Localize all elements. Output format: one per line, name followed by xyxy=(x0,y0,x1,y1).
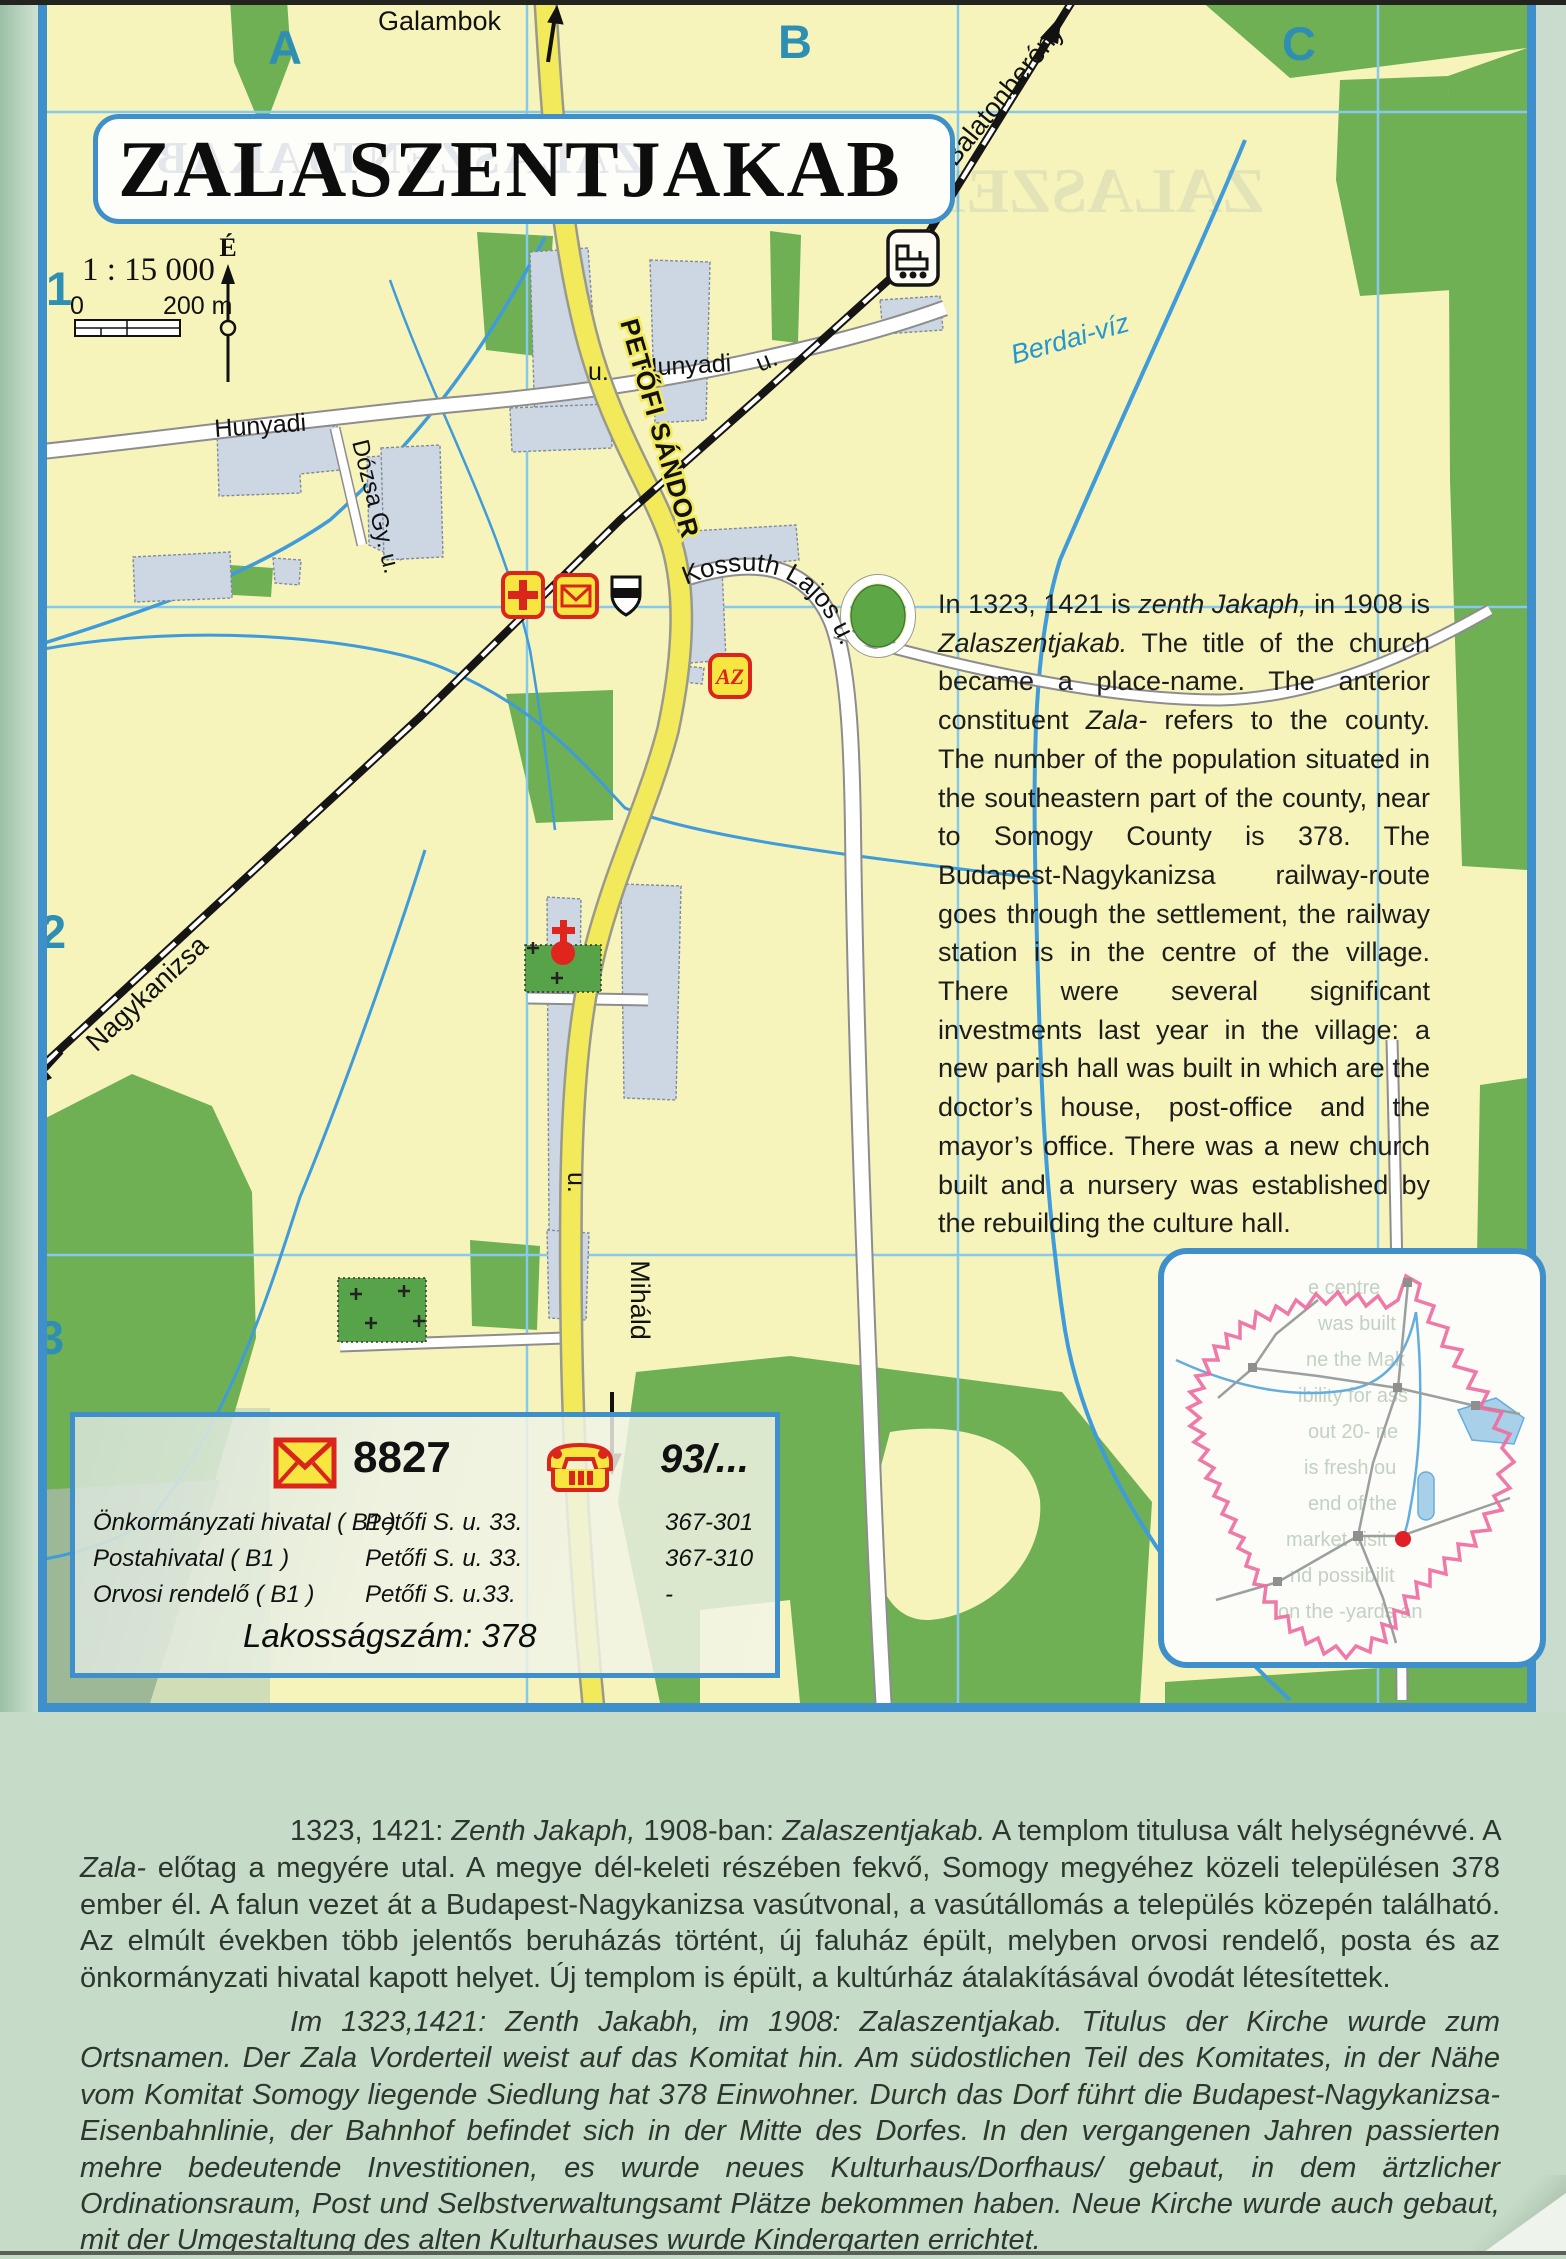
svg-text:nd possibilit: nd possibilit xyxy=(1290,1565,1395,1587)
grid-col-b: B xyxy=(778,15,812,68)
post-office-icon xyxy=(555,575,597,617)
street-suffix: u. xyxy=(588,358,609,386)
medical-cross-icon xyxy=(503,573,543,617)
sports-field xyxy=(841,575,915,657)
info-box: 8827 93/... Önkormányzati hivatal ( B1 )… xyxy=(70,1412,780,1678)
page-top-edge xyxy=(0,0,1566,5)
scale-ratio: 1 : 15 000 xyxy=(82,252,215,288)
grid-col-a: A xyxy=(268,21,302,74)
page-corner-curl xyxy=(1480,2193,1566,2255)
phone-icon xyxy=(543,1439,617,1493)
inset-pond xyxy=(1418,1472,1434,1520)
page-left-margin xyxy=(0,0,38,1712)
phone-prefix: 93/... xyxy=(660,1437,749,1482)
facility-address: Petőfi S. u.33. xyxy=(365,1581,516,1609)
facility-name: Orvosi rendelő ( B1 ) xyxy=(93,1581,314,1609)
abc-store-label: AZ xyxy=(714,664,744,689)
railway-station-icon xyxy=(888,231,938,285)
description-english: In 1323, 1421 is zenth Jakaph, in 1908 i… xyxy=(938,585,1430,1243)
scale-distance: 200 m xyxy=(163,292,232,320)
svg-text:is fresh ou: is fresh ou xyxy=(1304,1457,1396,1479)
postal-code: 8827 xyxy=(353,1433,451,1483)
population-count: Lakosságszám: 378 xyxy=(243,1617,537,1655)
svg-text:end of the: end of the xyxy=(1308,1493,1397,1515)
description-hungarian: 1323, 1421: Zenth Jakaph, 1908-ban: Zala… xyxy=(80,1813,1500,1997)
postal-envelope-icon xyxy=(273,1437,337,1489)
mihald-label: Miháld xyxy=(625,1260,655,1340)
grid-col-c: C xyxy=(1282,17,1316,70)
inset-village-marker xyxy=(1395,1531,1411,1547)
facility-name: Önkormányzati hivatal ( B1 ) xyxy=(93,1509,396,1537)
facility-address: Petőfi S. u. 33. xyxy=(365,1509,522,1537)
description-german: Im 1323,1421: Zenth Jakabh, im 1908: Zal… xyxy=(80,2004,1500,2259)
street-suffix: u. xyxy=(562,1172,590,1193)
facility-name: Postahivatal ( B1 ) xyxy=(93,1545,289,1573)
county-inset-map: e centre was built ne the Mak ibility fo… xyxy=(1158,1248,1546,1668)
facility-address: Petőfi S. u. 33. xyxy=(365,1545,522,1573)
facility-phone: 367-310 xyxy=(665,1545,753,1573)
abc-store-icon: AZ xyxy=(710,655,750,697)
cemetery xyxy=(338,1278,426,1342)
facility-phone: 367-301 xyxy=(665,1509,753,1537)
grid-row-1: 1 xyxy=(46,262,72,315)
north-label: É xyxy=(219,233,236,262)
galambok-label: Galambok xyxy=(378,6,502,36)
page-title: ZALASZENTJAKAB xyxy=(118,121,902,219)
svg-text:was built: was built xyxy=(1317,1313,1396,1335)
facility-phone: - xyxy=(665,1581,673,1609)
map-title-box: ZALASZENTJAKAB ZALASZENTJAKAB xyxy=(93,114,955,224)
page-bottom-edge xyxy=(0,2251,1566,2255)
